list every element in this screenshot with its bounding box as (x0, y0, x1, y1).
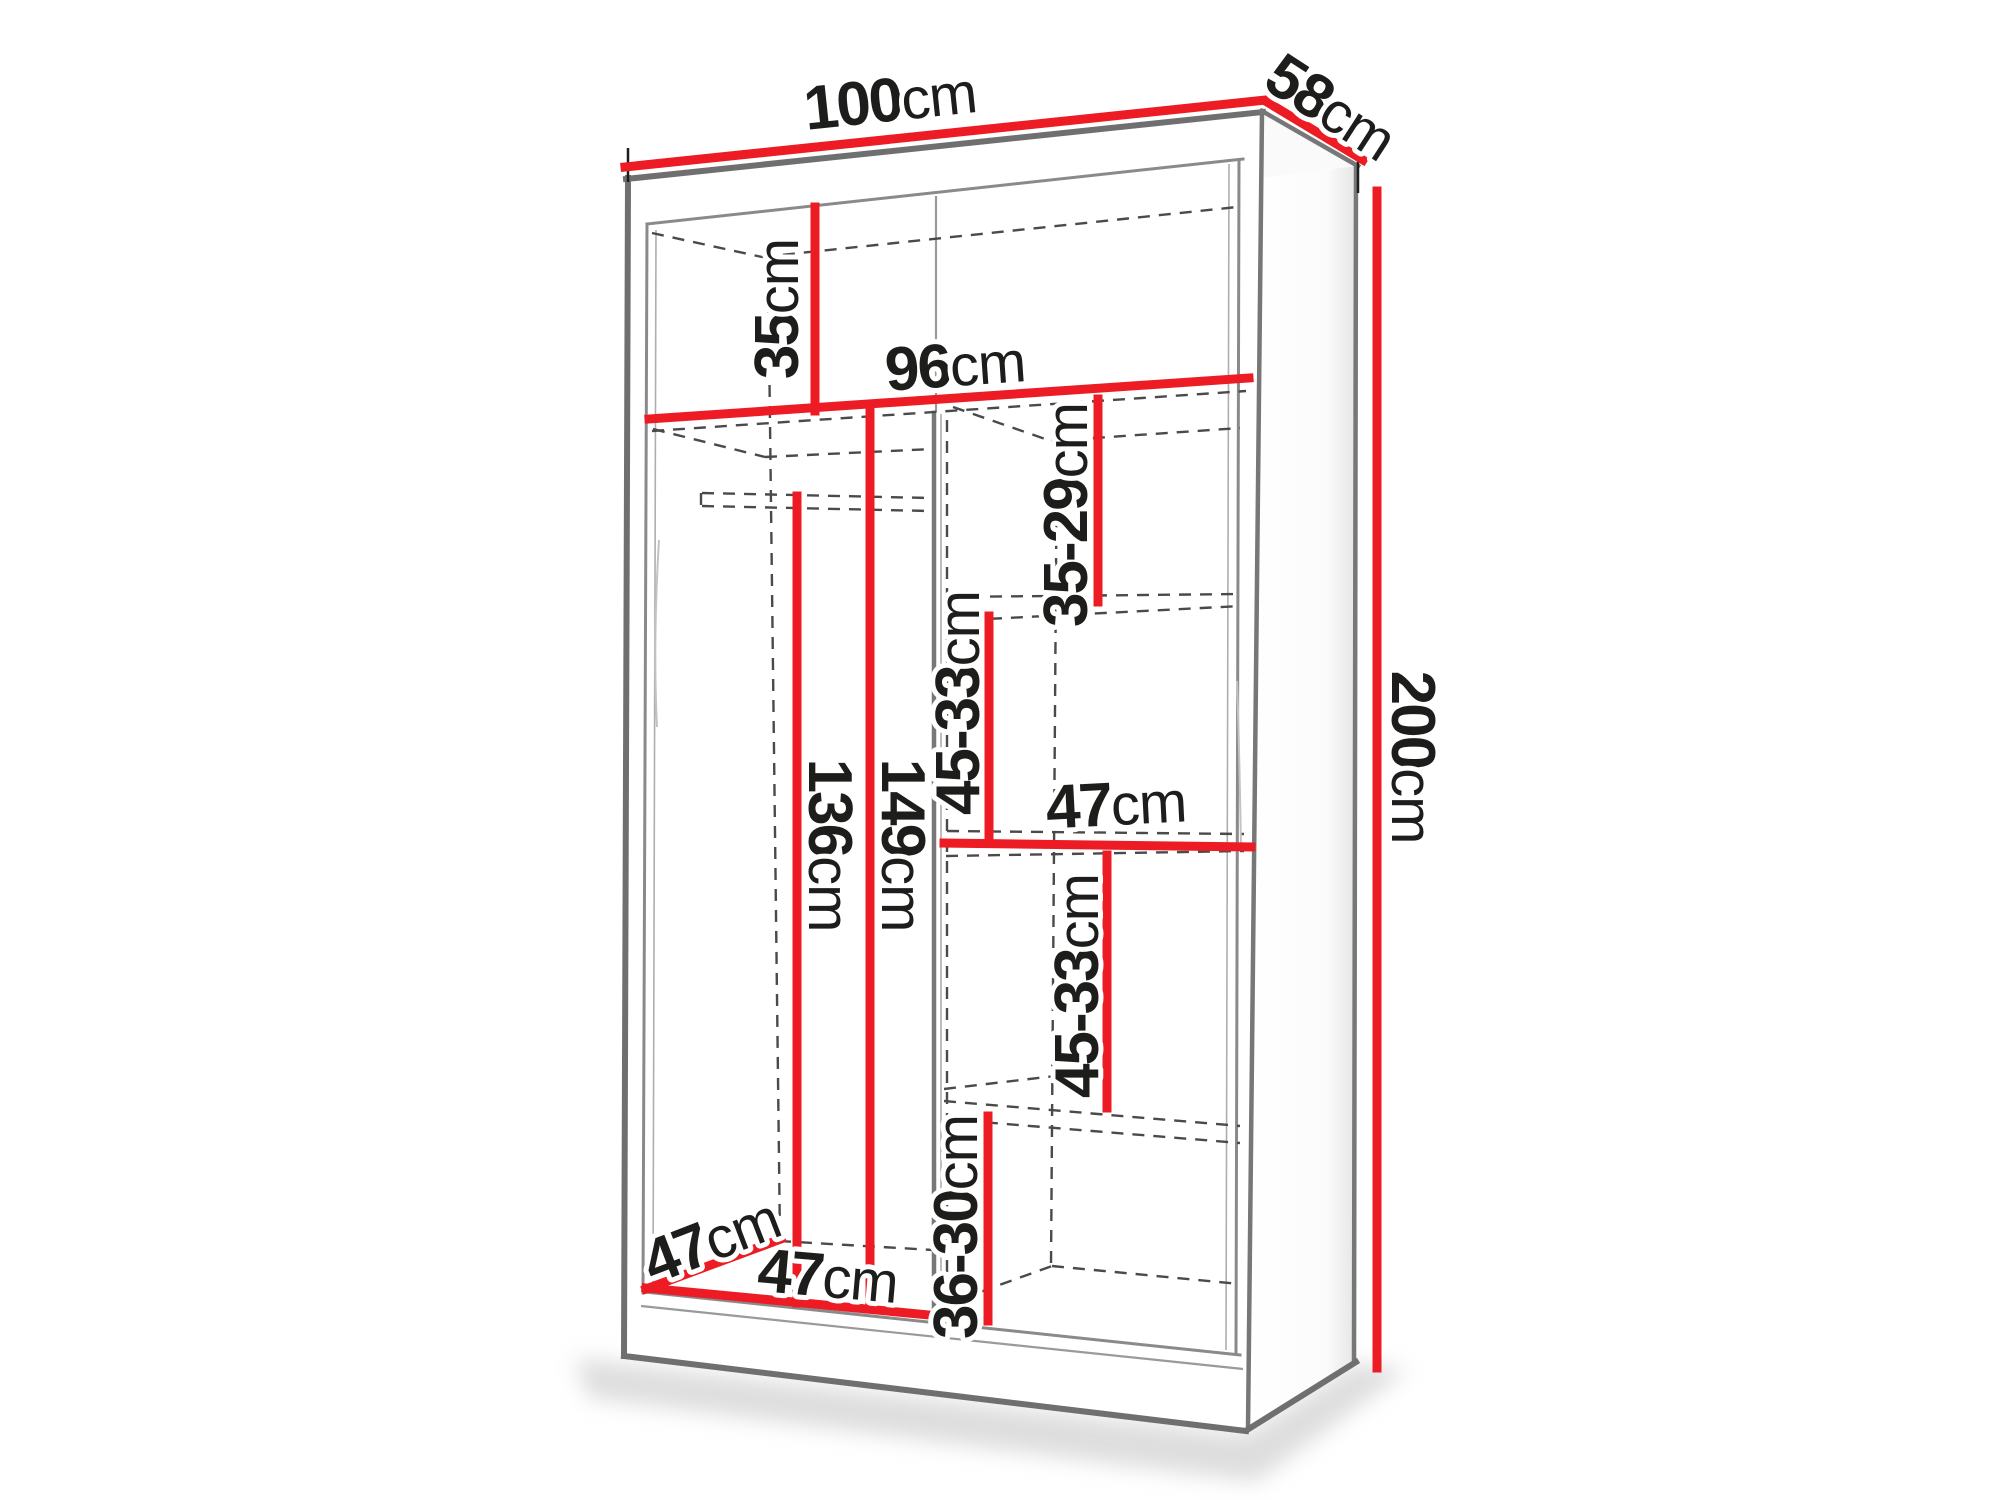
left-edge (624, 178, 628, 1356)
wardrobe-dimension-diagram: 100cm 58cm 200cm 35cm 96cm 35-29cm 45-33… (0, 0, 2000, 1500)
label-gap-shelf-1: 35-29cm (1032, 403, 1101, 627)
label-rail-height: 136cm (795, 759, 864, 932)
label-interior-width: 96cm (883, 326, 1028, 405)
label-shelf-width: 47cm (1044, 766, 1188, 842)
label-gap-shelf-4: 36-30cm (922, 1115, 991, 1339)
label-height: 200cm (1378, 671, 1447, 844)
dim-line-shelf-width (944, 843, 1251, 847)
back-right-edge (1354, 168, 1356, 1362)
label-top-compartment-height: 35cm (743, 239, 812, 379)
label-gap-shelf-3: 45-33cm (1043, 874, 1112, 1098)
diagram-canvas: 100cm 58cm 200cm 35cm 96cm 35-29cm 45-33… (0, 0, 2000, 1500)
side-panel-face (1247, 111, 1358, 1430)
label-left-height: 149cm (868, 759, 937, 932)
